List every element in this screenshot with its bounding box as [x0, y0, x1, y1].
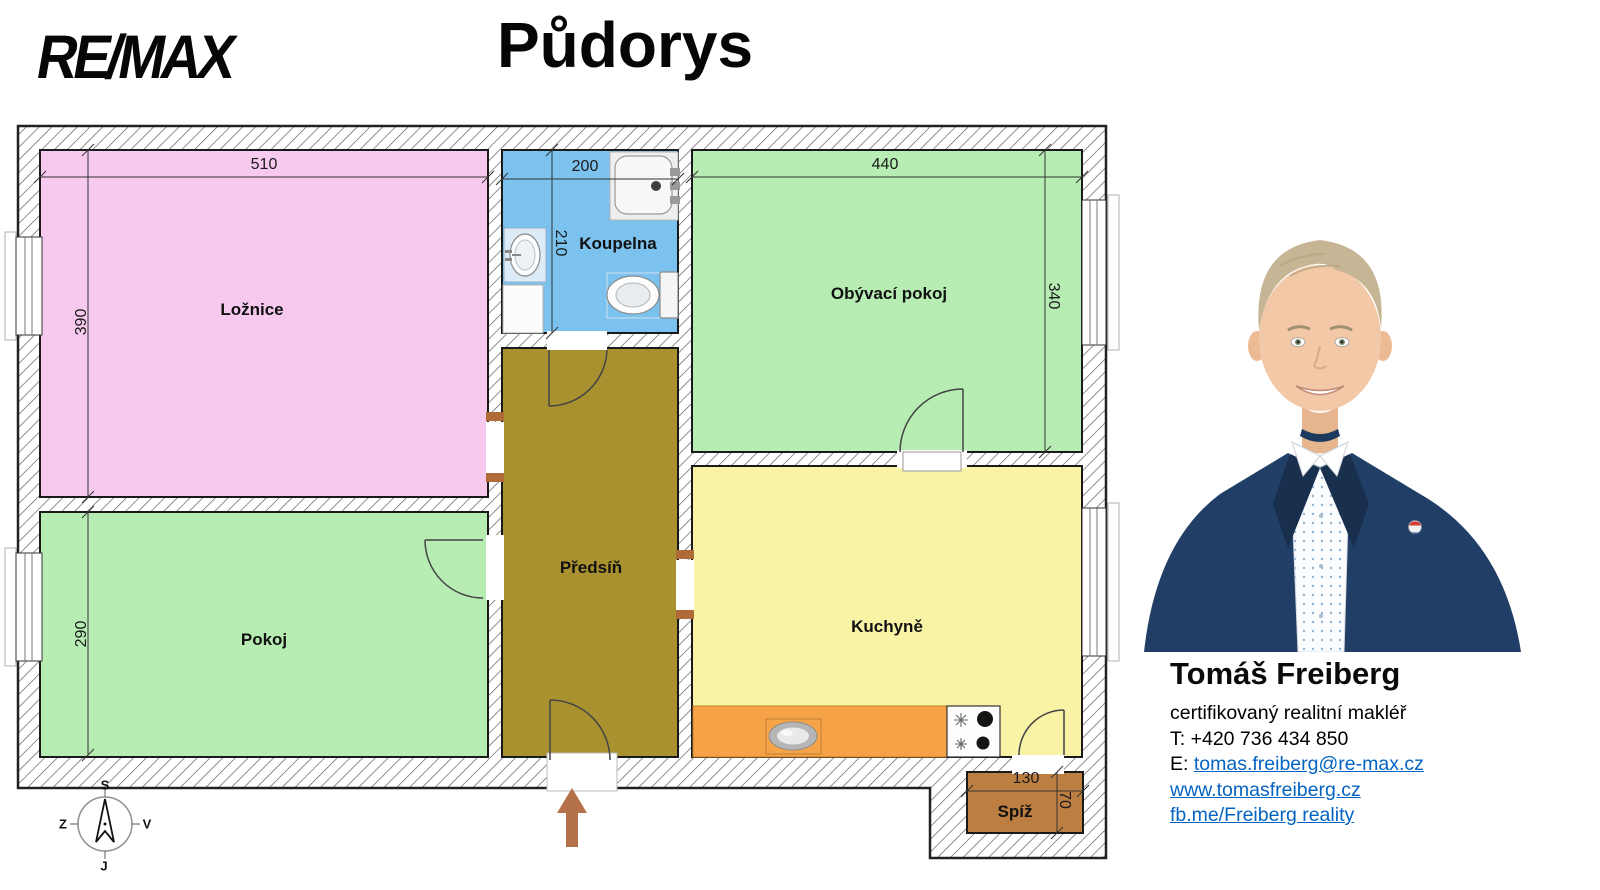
compass-east-label: V: [143, 817, 152, 832]
agent-website-line: www.tomasfreiberg.cz: [1170, 778, 1600, 804]
door-opening-obyvaci: [897, 450, 967, 471]
compass-north-label: S: [101, 778, 110, 793]
agent-phone-line: T: +420 736 434 850: [1170, 727, 1600, 753]
window-obyvaci-pokoj: [1082, 195, 1119, 350]
phone-number: +420 736 434 850: [1191, 728, 1349, 750]
shower: [610, 152, 680, 220]
dim-obyvaci-width: 440: [872, 156, 899, 174]
email-link[interactable]: tomas.freiberg@re-max.cz: [1194, 753, 1424, 775]
window-kuchyne: [1082, 503, 1119, 661]
agent-role: certifikovaný realitní makléř: [1170, 701, 1600, 727]
email-label: E:: [1170, 753, 1188, 775]
room-label-pokoj: Pokoj: [241, 630, 287, 650]
compass-south-label: J: [100, 859, 107, 874]
door-opening-koupelna: [547, 331, 607, 350]
dim-loznice-height: 390: [73, 309, 91, 336]
compass-west-label: Z: [59, 817, 67, 832]
dim-loznice-width: 510: [251, 156, 278, 174]
room-label-loznice: Ložnice: [220, 300, 283, 320]
dim-spiz-width: 130: [1013, 770, 1040, 788]
entrance-opening: [547, 753, 617, 791]
kitchen-stove: [947, 706, 1000, 757]
window-pokoj: [5, 548, 42, 666]
room-label-kuchyne: Kuchyně: [851, 617, 923, 637]
room-predsin: [502, 348, 678, 757]
remax-logo: RE/MAX: [32, 21, 238, 93]
room-loznice: [40, 150, 488, 497]
website-link[interactable]: www.tomasfreiberg.cz: [1170, 779, 1361, 801]
room-label-obyvaci-pokoj: Obývací pokoj: [831, 284, 947, 304]
room-label-predsin: Předsíň: [560, 558, 622, 578]
agent-email-line: E: tomas.freiberg@re-max.cz: [1170, 752, 1600, 778]
agent-facebook-line: fb.me/Freiberg reality: [1170, 803, 1600, 829]
compass-rose: [70, 789, 140, 859]
dim-pokoj-height: 290: [73, 621, 91, 648]
dim-obyvaci-height: 340: [1044, 283, 1062, 310]
doorway-loznice-predsin: [486, 412, 504, 482]
phone-label: T:: [1170, 728, 1185, 750]
room-label-spiz: Spíž: [998, 802, 1033, 822]
page-title: Půdorys: [440, 8, 810, 82]
door-opening-pokoj: [486, 535, 504, 600]
kitchen-counter: [693, 706, 947, 757]
dim-koupelna-width: 200: [572, 158, 599, 176]
washing-machine: [503, 285, 543, 333]
entrance-arrow-icon: [557, 788, 587, 847]
doorway-predsin-kuchyne: [676, 550, 694, 619]
dim-koupelna-height: 210: [551, 230, 569, 257]
bathroom-sink: [504, 228, 546, 282]
room-label-koupelna: Koupelna: [579, 234, 656, 254]
flyer-page: RE/MAX Půdorys Ložnice Koupelna Obývací …: [0, 0, 1600, 890]
agent-contact-block: Tomáš Freiberg certifikovaný realitní ma…: [1170, 656, 1600, 829]
dim-spiz-height: 70: [1055, 791, 1073, 809]
agent-photo: [1130, 196, 1535, 652]
window-loznice: [5, 232, 42, 340]
remax-balloon-pin: [1409, 521, 1422, 534]
facebook-link[interactable]: fb.me/Freiberg reality: [1170, 804, 1354, 826]
agent-name: Tomáš Freiberg: [1170, 656, 1600, 692]
